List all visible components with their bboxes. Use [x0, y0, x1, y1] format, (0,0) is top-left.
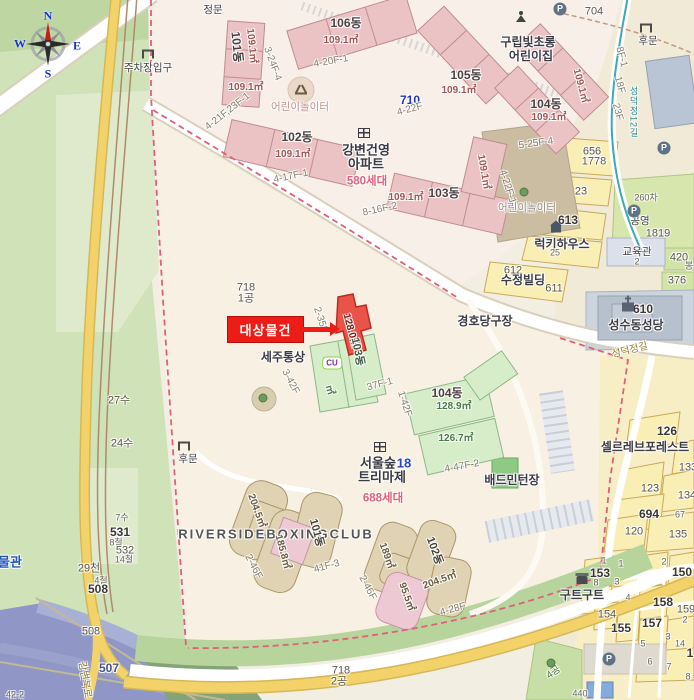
daycare-name: 어린이집 — [509, 50, 553, 62]
map-label: 3 — [665, 633, 670, 642]
map-label: 25 — [550, 249, 560, 258]
map-label: 128.9㎡ — [436, 402, 471, 412]
map-label: 109.1㎡ — [531, 113, 566, 123]
house-icon — [551, 226, 561, 233]
business-name: 구트구트 — [560, 589, 604, 601]
map-label: 8F-1 — [614, 46, 629, 68]
map-label: 95.5㎡ — [396, 581, 415, 612]
map-label: 610 — [633, 303, 653, 315]
map-label: 4-22F-1 — [497, 169, 517, 205]
map-canvas: 주차장입구정문101동109.1㎡3-24F-4109.1㎡106동109.1㎡… — [0, 0, 694, 700]
map-label: 531 — [110, 526, 130, 538]
apartment-name: 트리마제 — [358, 471, 406, 484]
map-label: 204.5㎡ — [422, 570, 458, 591]
map-label: 18F — [612, 75, 626, 94]
apt-icon — [358, 128, 370, 138]
apartment-name: 강변건영 — [342, 144, 390, 157]
map-label: 150 — [672, 566, 692, 578]
map-label: 105동 — [450, 69, 481, 81]
map-label: 158 — [653, 596, 673, 608]
shop-icon — [577, 576, 588, 584]
map-label: 4-17F-1 — [273, 168, 309, 185]
map-label: 27수 — [108, 396, 130, 407]
map-label: 4-47F-2 — [444, 459, 480, 475]
compass-west: W — [14, 37, 26, 52]
map-label: 155 — [611, 622, 631, 634]
compass-star — [24, 20, 72, 68]
museum-label: 물관 — [0, 556, 22, 569]
map-label: 102동 — [424, 536, 444, 567]
map-label: 508 — [88, 583, 108, 595]
map-label: 3-24F-4 — [261, 46, 282, 82]
tree-icon — [547, 659, 556, 668]
map-label: 154 — [598, 610, 616, 621]
map-label: 109.1㎡ — [571, 68, 590, 104]
map-label: 101동 — [229, 31, 244, 63]
back-gate-label: 후문 — [638, 36, 657, 47]
map-label: 2-46F — [242, 553, 263, 581]
church-name: 성수동성당 — [608, 319, 663, 331]
map-label: 8-16F-2 — [362, 201, 398, 218]
map-label: 120 — [625, 527, 643, 538]
map-label: 109.1㎡ — [388, 193, 423, 203]
compass-north: N — [44, 9, 53, 24]
target-property-callout: 대상물건 — [227, 316, 304, 343]
map-label: 8 — [593, 579, 598, 588]
play-icon — [295, 86, 307, 95]
p-icon: P — [603, 653, 616, 666]
map-label: 2공 — [331, 677, 347, 688]
map-label: 3 — [614, 578, 619, 587]
map-label: 8 — [685, 673, 690, 682]
map-label: 14철 — [115, 556, 133, 565]
map-label: 103동 — [428, 187, 459, 199]
map-label: 14 — [675, 640, 685, 649]
map-label: 1 — [618, 560, 623, 569]
map-label: 1 — [687, 647, 694, 659]
map-label: 507 — [99, 662, 119, 674]
map-label: 204.5㎡ — [245, 493, 266, 529]
compass-rose: N W E S — [12, 8, 84, 82]
map-label: 23F — [610, 102, 624, 121]
p-icon: P — [658, 142, 671, 155]
map-label: 104동 — [530, 98, 561, 110]
map-label: 2 — [682, 616, 687, 625]
apt-icon — [374, 442, 386, 452]
main-gate-label: 정문 — [203, 5, 222, 16]
daycare-name: 구립빛초롱 — [500, 36, 555, 48]
street-name: 성덕정길 — [611, 342, 649, 361]
map-label: 41F-3 — [313, 559, 341, 575]
map-label: 704 — [585, 7, 603, 18]
map-label: 1공 — [238, 294, 254, 305]
map-label: 3-42F — [279, 368, 300, 396]
map-label: 1819 — [646, 229, 670, 240]
parking-entrance-label: 주차장입구 — [124, 63, 172, 74]
map-label: 2 — [634, 258, 639, 267]
business-name: 세주통상 — [261, 351, 305, 363]
map-label: 611 — [545, 284, 563, 295]
map-label: 109.1㎡ — [275, 150, 310, 160]
map-label: 7 — [666, 663, 671, 672]
map-label: 1778 — [582, 157, 606, 168]
map-label: 6 — [647, 658, 652, 667]
map-label: 106동 — [330, 17, 361, 29]
gate-icon — [640, 24, 652, 33]
map-label: 109.1㎡ — [475, 154, 491, 190]
map-label: 260차 — [634, 194, 657, 203]
map-label: 5 — [640, 640, 645, 649]
map-label: 4-20F-1 — [313, 54, 349, 70]
map-label: 440 — [572, 690, 587, 699]
building-name: 럭키하우스 — [534, 238, 589, 250]
map-label: 18 — [397, 457, 411, 470]
map-label: 7수 — [115, 514, 128, 523]
map-label: 135 — [669, 530, 687, 541]
map-label: 376 — [668, 276, 686, 287]
target-arrow-icon — [303, 327, 331, 332]
map-label: 24수 — [111, 439, 133, 450]
map-label: 4 — [625, 594, 630, 603]
map-label: 42-2 — [6, 691, 24, 700]
map-label: 1-42F — [395, 390, 413, 418]
playground-label: 어린이놀이터 — [271, 102, 329, 113]
playground-label: 어린이놀이터 — [498, 203, 556, 214]
apartment-name: 아파트 — [348, 158, 384, 171]
tree-icon — [520, 188, 529, 197]
map-label: 109.1㎡ — [441, 86, 476, 96]
street-name: 성덕정12길 — [629, 86, 638, 138]
street-name: 강변북로 — [76, 661, 92, 699]
gate-icon — [178, 442, 190, 451]
map-label: 2 — [661, 558, 666, 567]
p-icon: P — [554, 3, 567, 16]
map-label: 694 — [639, 508, 659, 520]
building-name: 수정빌딩 — [501, 274, 545, 286]
map-label: ㎡ — [323, 384, 335, 396]
household-count: 580세대 — [347, 176, 387, 188]
map-label: 67 — [675, 511, 685, 520]
map-label: 126.7㎡ — [438, 434, 473, 444]
map-label: 126 — [657, 425, 677, 437]
business-name: 경호당구장 — [457, 315, 512, 327]
map-label: 189㎡ — [377, 542, 396, 570]
apartment-name: 서울숲 — [360, 457, 396, 470]
map-label: 104동 — [431, 387, 462, 399]
church-icon — [622, 303, 634, 312]
map-label: 4공 — [545, 665, 563, 682]
badminton-court-label: 배드민턴장 — [484, 474, 539, 486]
map-label: 101동 — [307, 518, 325, 548]
compass-east: E — [73, 39, 81, 54]
building-name: 셀르레브포레스트 — [601, 441, 689, 453]
map-label: 102동 — [281, 131, 312, 143]
map-label: 4-21F,23F-1 — [204, 91, 253, 132]
map-label: 5-25F-4 — [518, 137, 554, 152]
map-label: 37F-1 — [366, 377, 394, 393]
map-label: 134 — [678, 491, 694, 502]
back-gate-label: 후문 — [178, 454, 197, 465]
target-property-label: 대상물건 — [240, 320, 292, 339]
map-label: 109.1㎡ — [323, 36, 358, 46]
map-label: 29천 — [78, 564, 100, 575]
map-label: 133 — [679, 463, 694, 474]
map-label: 103동 — [349, 337, 366, 367]
tree-icon — [259, 394, 268, 403]
map-label: 23 — [575, 187, 587, 198]
compass-south: S — [45, 67, 52, 82]
label-layer: 주차장입구정문101동109.1㎡3-24F-4109.1㎡106동109.1㎡… — [0, 0, 694, 700]
household-count: 688세대 — [363, 493, 403, 505]
map-label: 1 — [601, 557, 606, 566]
map-label: 봉 — [685, 262, 693, 271]
map-label: 157 — [642, 617, 662, 629]
gate-icon — [142, 50, 154, 59]
child-icon — [516, 11, 526, 23]
cu-icon: CU — [322, 357, 342, 370]
map-label: 508 — [82, 627, 100, 638]
map-label: 109.1㎡ — [244, 28, 258, 64]
map-label: 2-46F — [356, 574, 377, 602]
map-label: 4-28F — [439, 602, 467, 618]
map-label: 123 — [641, 484, 659, 495]
p-icon: P — [628, 205, 641, 218]
